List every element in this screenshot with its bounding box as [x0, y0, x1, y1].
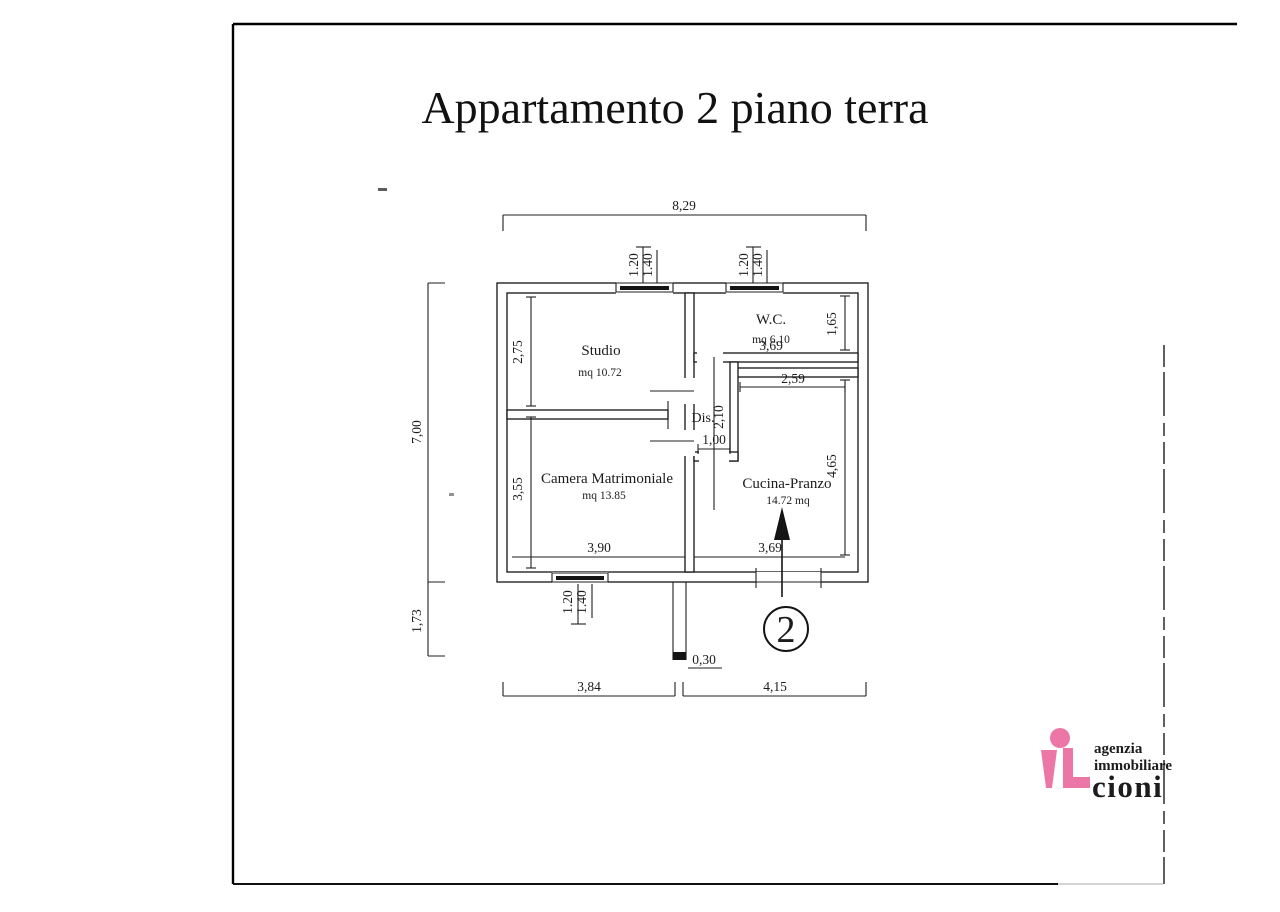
room-camera-area: mq 13.85 — [582, 490, 626, 502]
dis-right-wall — [730, 362, 738, 461]
dim-window-outer: 1.40 — [750, 253, 765, 277]
agency-logo: agenzia immobiliare cioni — [1036, 723, 1196, 805]
scanned-page: 8,29 7,00 1,73 1.20 1.40 1.20 1.40 1.20 … — [0, 0, 1280, 907]
door-opening — [684, 430, 695, 456]
dim-dis-passage: 1,00 — [702, 432, 726, 447]
room-wc-area: mq 6.10 — [752, 334, 790, 346]
dim-studio-height: 2,75 — [510, 340, 525, 364]
unit-number: 2 — [777, 609, 796, 651]
page-title: Appartamento 2 piano terra — [275, 84, 1075, 132]
agency-logo-mark — [1041, 728, 1090, 788]
scan-artifacts — [378, 188, 454, 496]
dim-wc-height: 1,65 — [824, 312, 839, 336]
dim-window-inner: 1.20 — [560, 590, 575, 614]
room-studio-name: Studio — [581, 343, 620, 359]
logo-figure-arm — [1041, 750, 1057, 788]
room-studio-area: mq 10.72 — [578, 367, 622, 379]
room-wc-name: W.C. — [756, 312, 786, 328]
logo-text-agenzia: agenzia — [1094, 741, 1143, 757]
dim-window-inner: 1.20 — [736, 253, 751, 277]
dim-entry-wall: 0,30 — [692, 652, 716, 667]
door-opening — [697, 352, 723, 363]
room-dis-name: Dis. — [692, 411, 715, 426]
logo-figure-head — [1050, 728, 1070, 748]
dim-camera-height: 3,55 — [510, 477, 525, 501]
walls — [497, 283, 868, 582]
dim-bottom-right: 4,15 — [763, 679, 787, 694]
dim-cucina-width: 3,69 — [758, 540, 782, 555]
room-cucina-name: Cucina-Pranzo — [742, 476, 831, 492]
dim-window-outer: 1.40 — [640, 253, 655, 277]
room-camera-name: Camera Matrimoniale — [541, 471, 673, 487]
logo-figure-body — [1063, 748, 1090, 788]
inner-wall-face — [507, 293, 858, 572]
dim-window-outer: 1.40 — [574, 590, 589, 614]
scan-artifact — [378, 188, 387, 191]
dim-overall-width: 8,29 — [672, 198, 696, 213]
scan-artifact — [449, 493, 454, 496]
dim-window-inner: 1.20 — [626, 253, 641, 277]
dim-camera-width: 3,90 — [587, 540, 611, 555]
dim-bottom-left: 3,84 — [577, 679, 601, 694]
dim-below-height: 1,73 — [409, 609, 424, 633]
unit-number-badge: 2 — [764, 607, 808, 651]
room-cucina-area: 14.72 mq — [766, 495, 810, 507]
logo-text-brand: cioni — [1092, 769, 1163, 804]
agency-logo-svg: agenzia immobiliare cioni — [1036, 723, 1196, 805]
floor-plan: 8,29 7,00 1,73 1.20 1.40 1.20 1.40 1.20 … — [409, 198, 868, 696]
entry-wall-stub — [673, 582, 686, 660]
dim-overall-height: 7,00 — [409, 420, 424, 444]
dim-cucina-height: 4,65 — [824, 454, 839, 478]
dim-cucina-top-width: 2,59 — [781, 371, 805, 386]
